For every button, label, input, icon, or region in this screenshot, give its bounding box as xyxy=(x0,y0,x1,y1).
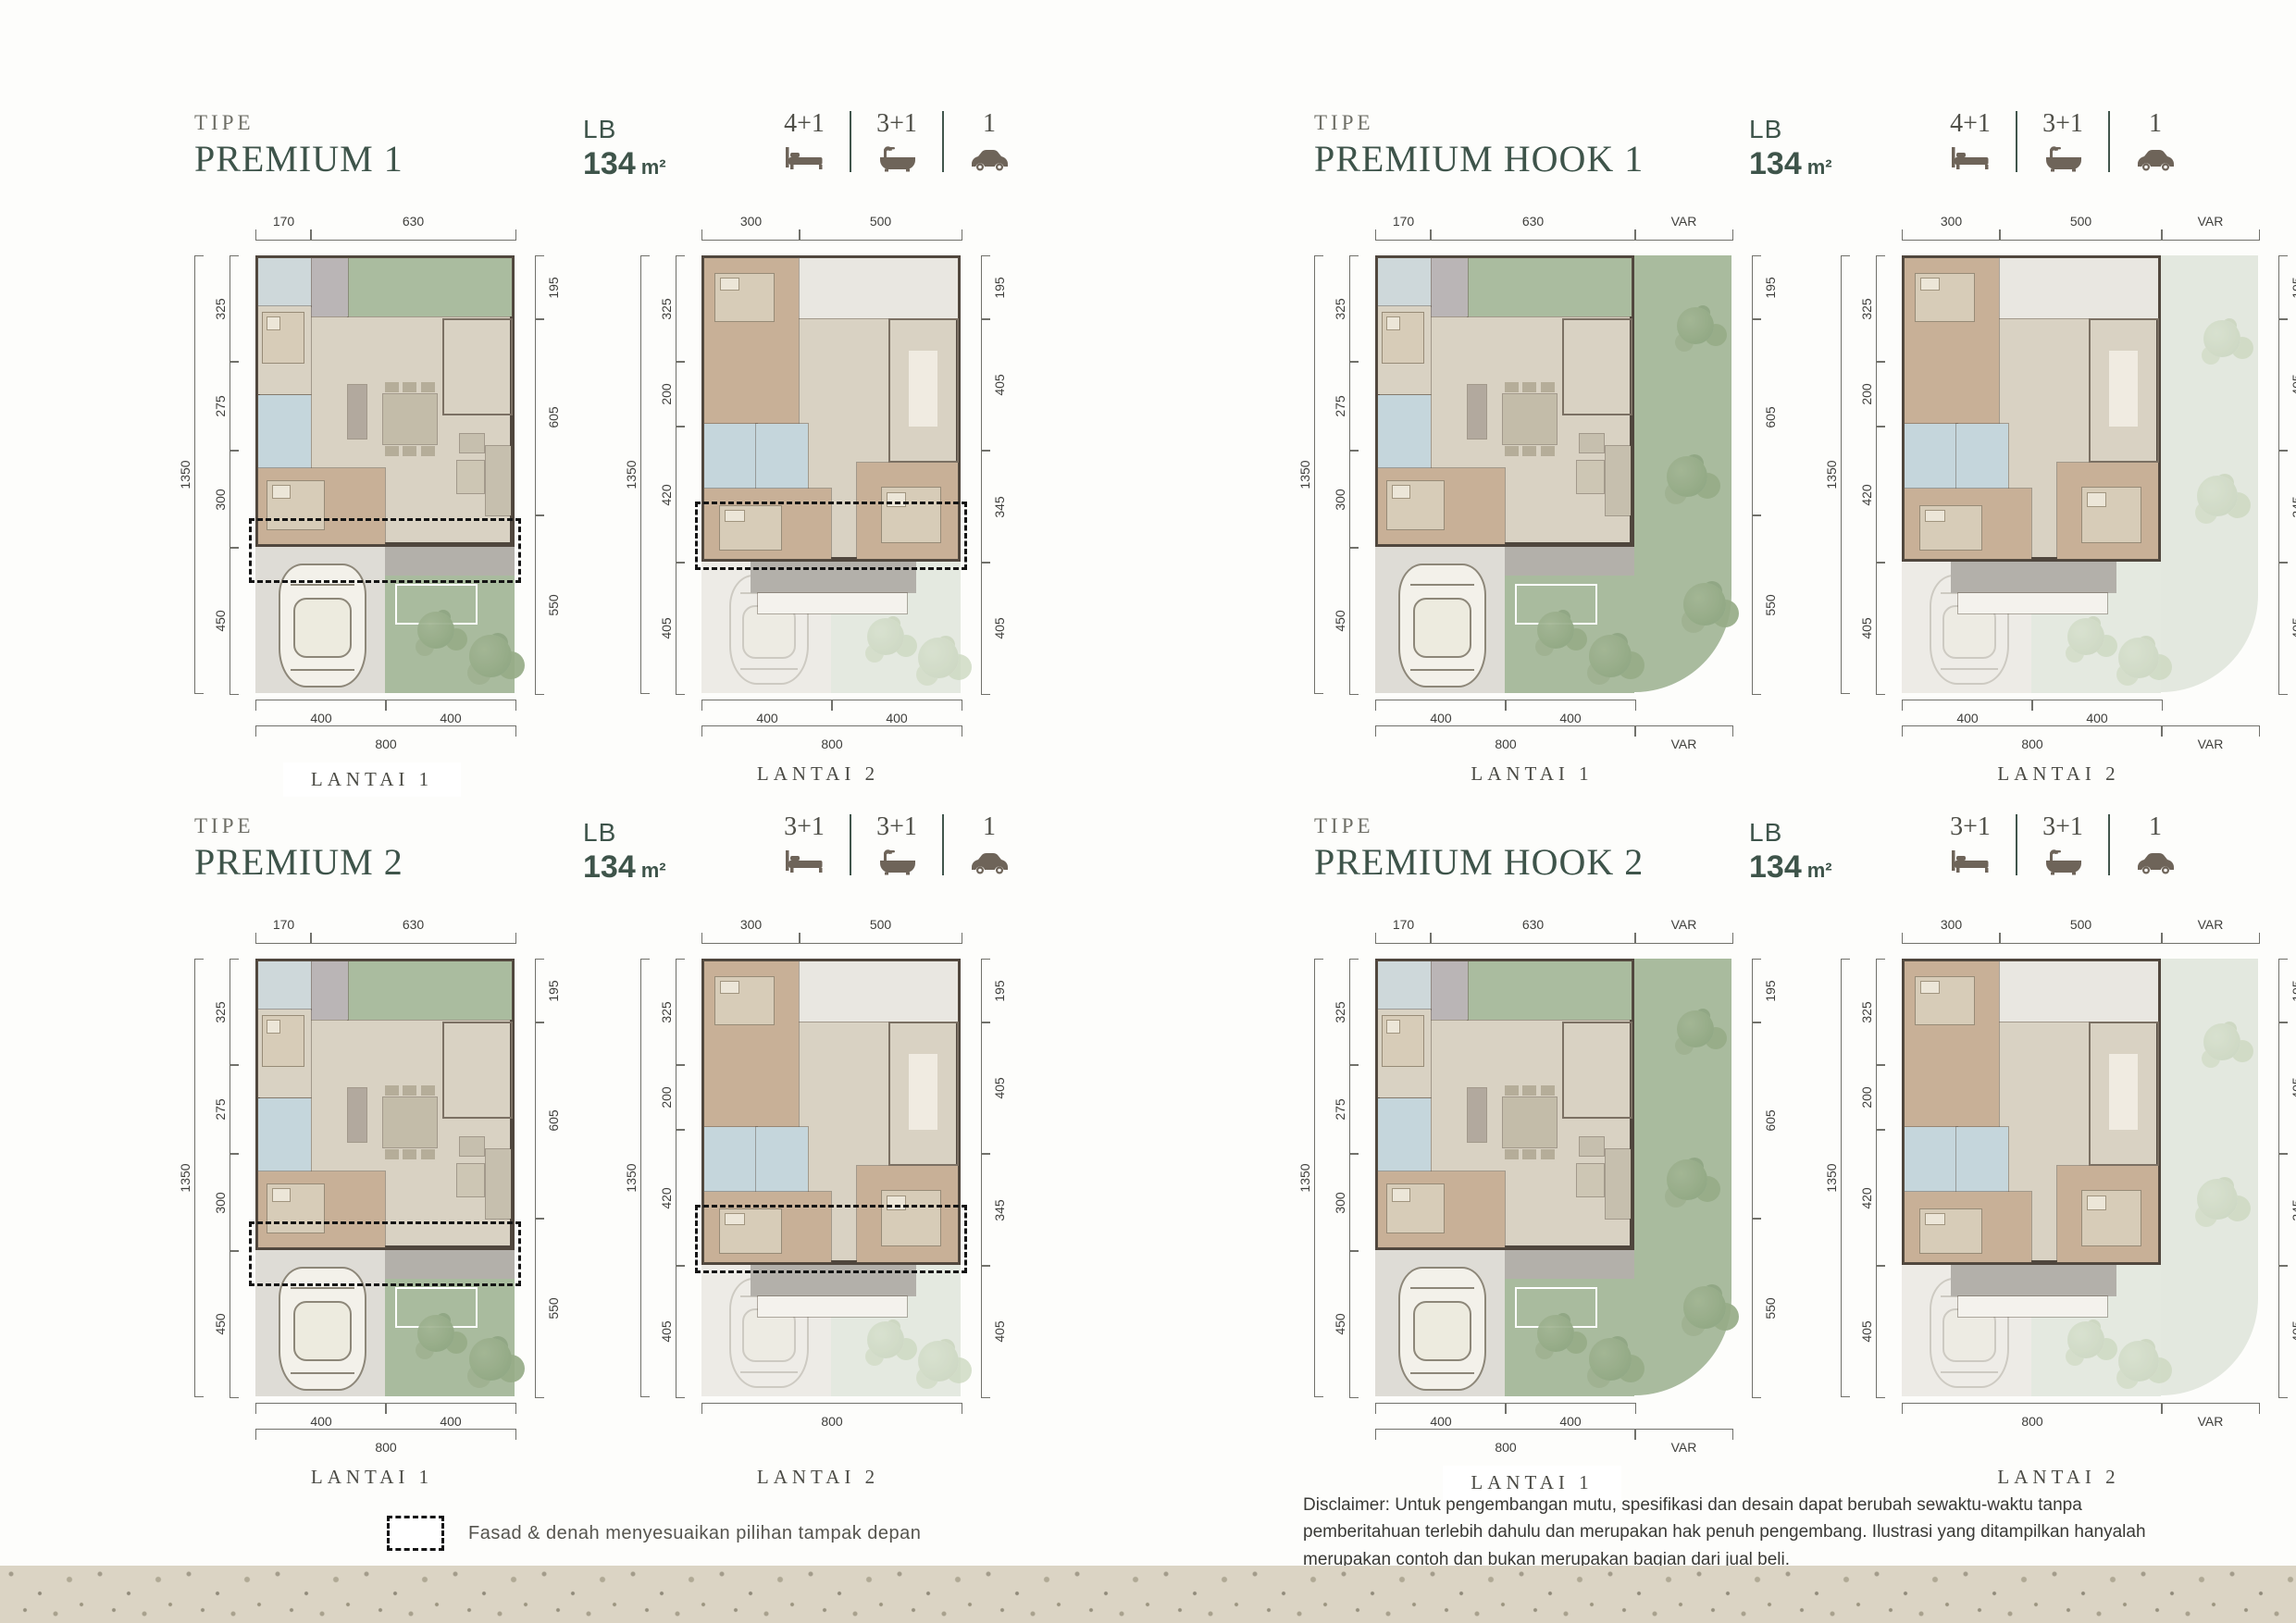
dim-label: 420 xyxy=(1859,1187,1874,1208)
dim-label: 405 xyxy=(992,1320,1007,1342)
dining-chair xyxy=(403,1085,416,1096)
dimension-line: 800 xyxy=(255,725,516,737)
pillow xyxy=(267,316,280,330)
dimension-line: 200 xyxy=(676,1064,685,1131)
floor-plan-lantai-2: LANTAI 2 3005001350325200420405195405345… xyxy=(622,918,1014,1497)
dimension-line: 300 xyxy=(701,933,800,944)
dimension-line: 405 xyxy=(676,562,685,695)
dim-label: 400 xyxy=(256,711,386,725)
plan-caption: LANTAI 2 xyxy=(622,762,1014,786)
terrazzo-footer-band xyxy=(0,1566,2296,1623)
dimension-line: 400 xyxy=(831,700,962,711)
dimension-line: 345 xyxy=(981,450,990,564)
floor-plan-canvas xyxy=(1296,918,1785,1395)
dimension-line: 500 xyxy=(1999,229,2163,241)
kitchen-counter xyxy=(348,1088,366,1142)
dimension-line: 170 xyxy=(255,229,312,241)
dimension-line: 405 xyxy=(676,1265,685,1398)
plan-caption: LANTAI 1 xyxy=(176,1466,568,1489)
car-icon xyxy=(968,144,1011,172)
dim-label: 405 xyxy=(2290,374,2296,395)
dimension-line: 400 xyxy=(255,700,387,711)
coffee-table xyxy=(457,1164,484,1196)
bed-icon xyxy=(1386,480,1445,530)
plans-row: LANTAI 1 1706301350325275300450195605550… xyxy=(176,215,1064,794)
dim-label: 450 xyxy=(213,1313,228,1334)
car-rearwindow xyxy=(740,1371,798,1373)
lb-value: 134 xyxy=(583,849,636,885)
dimension-line: 275 xyxy=(230,361,239,452)
dimension-line: 500 xyxy=(1999,933,2163,944)
dining-chair xyxy=(1522,446,1536,456)
pillow xyxy=(1920,981,1940,994)
dim-label: 500 xyxy=(800,214,962,229)
dim-label: 400 xyxy=(1376,711,1506,725)
dimension-line: 400 xyxy=(701,700,833,711)
unit-stats: 3+13+11 xyxy=(759,814,1035,875)
floor-plan-lantai-2: LANTAI 2 3005001350325200420405195405345… xyxy=(622,215,1014,794)
car-rearwindow xyxy=(740,668,798,670)
dim-label: 800 xyxy=(702,737,962,751)
dining-chair xyxy=(403,446,416,456)
dim-label: 195 xyxy=(1763,277,1778,298)
dimension-line: VAR xyxy=(2161,933,2260,944)
dim-label: 400 xyxy=(256,1414,386,1429)
dim-label: VAR xyxy=(1635,737,1732,751)
front-garden xyxy=(1468,258,1632,316)
awning xyxy=(1958,1296,2107,1317)
dim-label: VAR xyxy=(2162,1414,2259,1429)
stat-value: 4+1 xyxy=(784,111,825,137)
dimension-line: 400 xyxy=(1375,1403,1507,1414)
section-header: TIPE PREMIUM HOOK 1 LB 134m² 4+13+11 xyxy=(1296,111,2295,204)
plan-caption: LANTAI 1 xyxy=(176,762,568,797)
bed-icon xyxy=(1915,273,1975,322)
bathroom xyxy=(258,1098,311,1171)
coffee-table xyxy=(1577,461,1604,493)
lb-unit: m² xyxy=(1807,155,1832,179)
plan-caption: LANTAI 2 xyxy=(622,1466,1014,1489)
armchair xyxy=(460,434,484,452)
dimension-line: VAR xyxy=(2161,229,2260,241)
dimension-line: 450 xyxy=(230,1250,239,1398)
dimension-line: 400 xyxy=(385,1403,516,1414)
car-roof xyxy=(1413,1301,1472,1361)
dimension-line: 400 xyxy=(1375,700,1507,711)
dimension-line: 195 xyxy=(535,255,544,320)
stat-bed: 4+1 xyxy=(759,111,850,172)
car-windshield xyxy=(291,1287,354,1289)
bath-icon xyxy=(875,848,918,875)
dimension-line: 800 xyxy=(701,725,962,737)
dim-label: 420 xyxy=(1859,484,1874,505)
dimension-line: 400 xyxy=(2031,700,2163,711)
dining-chair xyxy=(1505,382,1519,392)
lb-block: LB 134m² xyxy=(583,111,759,182)
bathroom xyxy=(1378,1098,1431,1171)
dim-label: 400 xyxy=(702,711,832,725)
dim-label: 800 xyxy=(1376,737,1635,751)
dim-label: 550 xyxy=(1763,594,1778,615)
dining-chair xyxy=(385,1149,399,1159)
dimension-line: 605 xyxy=(1752,318,1761,516)
stat-car: 1 xyxy=(2108,111,2201,172)
dimension-line: 405 xyxy=(1876,1265,1885,1398)
dining-table xyxy=(1503,394,1557,444)
stat-value: 3+1 xyxy=(876,814,917,840)
tree-icon xyxy=(469,1338,512,1381)
stair-landing xyxy=(909,351,937,427)
bed-icon xyxy=(262,312,304,364)
foyer xyxy=(311,961,348,1020)
type-name: PREMIUM 1 xyxy=(194,137,583,180)
dimension-line: 450 xyxy=(230,547,239,695)
lb-unit: m² xyxy=(1807,859,1832,882)
dimension-line: 170 xyxy=(1375,229,1432,241)
dimension-line: 800 xyxy=(701,1403,962,1414)
stat-bath: 3+1 xyxy=(2016,814,2108,875)
canopy xyxy=(1951,562,2116,593)
tipe-label: TIPE xyxy=(1314,111,1749,135)
dim-label: 400 xyxy=(1506,711,1635,725)
dim-label: 325 xyxy=(1333,1001,1347,1022)
dimension-line: 200 xyxy=(1876,1064,1885,1131)
bed-icon xyxy=(783,848,825,875)
tree-icon xyxy=(2197,1179,2238,1220)
stat-bed: 4+1 xyxy=(1925,111,2016,172)
dining-chair xyxy=(385,446,399,456)
dim-label: 325 xyxy=(659,1001,674,1022)
dimension-line: 405 xyxy=(981,1022,990,1155)
side-garden xyxy=(2161,255,2258,692)
dimension-line: 405 xyxy=(981,318,990,452)
dim-label: 450 xyxy=(1333,1313,1347,1334)
dimension-line: 195 xyxy=(2278,959,2288,1023)
dim-label: 400 xyxy=(1903,711,2032,725)
dimension-line: 405 xyxy=(2278,1022,2288,1155)
dimension-line: VAR xyxy=(1634,229,1733,241)
dim-label: VAR xyxy=(2162,917,2259,932)
section-premium-hook-1: TIPE PREMIUM HOOK 1 LB 134m² 4+13+11 LAN… xyxy=(1296,111,2295,794)
front-garden xyxy=(1468,961,1632,1020)
stair-landing xyxy=(2109,351,2138,427)
dim-label: 550 xyxy=(1763,1297,1778,1319)
dim-label: 500 xyxy=(800,917,962,932)
dimension-line: 605 xyxy=(535,1022,544,1220)
dim-label: 405 xyxy=(2290,1077,2296,1098)
dimension-line: 345 xyxy=(981,1153,990,1267)
stairs xyxy=(1562,318,1632,415)
dimension-line: 405 xyxy=(981,562,990,695)
dim-label: 300 xyxy=(1903,917,2000,932)
pillow xyxy=(1386,1020,1400,1034)
tree-icon xyxy=(918,1341,959,1381)
dim-label: 420 xyxy=(659,484,674,505)
tree-icon xyxy=(2118,1341,2159,1381)
dimension-line: 300 xyxy=(1902,229,2001,241)
section-header: TIPE PREMIUM 2 LB 134m² 3+13+11 xyxy=(176,814,1064,907)
dimension-line: 500 xyxy=(799,229,962,241)
dim-label: 550 xyxy=(546,1297,561,1319)
tree-icon xyxy=(1537,1315,1574,1352)
dim-label: 400 xyxy=(1376,1414,1506,1429)
pillow xyxy=(1925,1213,1945,1225)
dimension-line: 200 xyxy=(1876,361,1885,427)
dim-label: 170 xyxy=(256,214,311,229)
dimension-line: 300 xyxy=(701,229,800,241)
dining-chair xyxy=(421,1149,435,1159)
dimension-line: 275 xyxy=(1349,1064,1359,1155)
dimension-line: VAR xyxy=(1634,1429,1733,1440)
stat-value: 1 xyxy=(983,814,996,840)
dim-label: VAR xyxy=(2162,737,2259,751)
dining-chair xyxy=(1505,1085,1519,1096)
bathroom xyxy=(258,961,311,1010)
dimension-line: 195 xyxy=(2278,255,2288,320)
front-garden xyxy=(348,258,512,316)
tree-icon xyxy=(1667,456,1707,497)
fasad-legend: Fasad & denah menyesuaikan pilihan tampa… xyxy=(387,1516,921,1551)
stat-car: 1 xyxy=(942,814,1035,875)
sofa xyxy=(486,1149,511,1219)
dimension-line: 420 xyxy=(676,426,685,564)
plans-row: LANTAI 1 170630VAR1350325275300450195605… xyxy=(1296,918,2295,1497)
lb-value: 134 xyxy=(583,146,636,181)
dimension-line: 195 xyxy=(535,959,544,1023)
floor-plan-lantai-1: LANTAI 1 170630VAR1350325275300450195605… xyxy=(1296,215,1769,794)
dim-label: 605 xyxy=(546,406,561,427)
car-roof xyxy=(293,1301,353,1361)
bathroom xyxy=(1378,961,1431,1010)
car-icon xyxy=(2134,848,2177,875)
dim-label: 405 xyxy=(992,617,1007,638)
stairs xyxy=(442,318,513,415)
brochure-page: TIPE PREMIUM 1 LB 134m² 4+13+11 LANTAI 1… xyxy=(0,0,2296,1623)
car-rearwindow xyxy=(1410,1372,1474,1374)
floor-plan-canvas xyxy=(1296,215,1785,692)
fasad-marker xyxy=(249,1221,521,1286)
dimension-line: 345 xyxy=(2278,1153,2288,1267)
dim-label: 195 xyxy=(1763,980,1778,1001)
dim-label: 405 xyxy=(659,1320,674,1342)
dim-label: 1350 xyxy=(178,460,192,489)
car-windshield xyxy=(291,584,354,586)
dining-chair xyxy=(1541,1149,1555,1159)
coffee-table xyxy=(1577,1164,1604,1196)
tree-icon xyxy=(2118,638,2159,678)
pillow xyxy=(2087,492,2106,507)
dimension-line: 400 xyxy=(1902,700,2033,711)
car-windshield xyxy=(1410,584,1474,586)
tree-icon xyxy=(867,1321,904,1358)
stat-value: 3+1 xyxy=(1950,814,1991,840)
awning xyxy=(1958,593,2107,613)
stat-value: 3+1 xyxy=(784,814,825,840)
dimension-line: 1350 xyxy=(640,959,650,1397)
stairs xyxy=(442,1022,513,1119)
type-name: PREMIUM HOOK 2 xyxy=(1314,840,1749,884)
dim-label: 275 xyxy=(213,1098,228,1120)
type-name: PREMIUM HOOK 1 xyxy=(1314,137,1749,180)
dim-label: 630 xyxy=(311,214,515,229)
dimension-line: 170 xyxy=(255,933,312,944)
dim-label: 405 xyxy=(1859,617,1874,638)
dimension-line: 630 xyxy=(310,933,516,944)
lb-unit: m² xyxy=(641,859,666,882)
dimension-line: 405 xyxy=(2278,562,2288,695)
front-garden xyxy=(348,961,512,1020)
bath-icon xyxy=(2042,848,2084,875)
dim-label: 605 xyxy=(1763,406,1778,427)
tree-icon xyxy=(1683,583,1726,626)
dim-label: 1350 xyxy=(1297,460,1312,489)
stat-car: 1 xyxy=(2108,814,2201,875)
foyer xyxy=(311,258,348,316)
legend-text: Fasad & denah menyesuaikan pilihan tampa… xyxy=(468,1523,921,1544)
bathroom xyxy=(1905,1127,1957,1192)
dim-label: 800 xyxy=(1903,1414,2162,1429)
car-windshield xyxy=(1410,1287,1474,1289)
fasad-marker xyxy=(249,518,521,583)
dim-label: 200 xyxy=(1859,383,1874,404)
dim-label: 800 xyxy=(702,1414,962,1429)
dim-label: 405 xyxy=(1859,1320,1874,1342)
stat-value: 1 xyxy=(2149,814,2162,840)
dim-label: 800 xyxy=(1376,1440,1635,1455)
bed-icon xyxy=(714,273,775,322)
tree-icon xyxy=(1667,1159,1707,1200)
dining-chair xyxy=(1541,382,1555,392)
pillow xyxy=(2087,1196,2106,1210)
car-topview-icon xyxy=(1398,564,1486,688)
dimension-line: 275 xyxy=(1349,361,1359,452)
dim-label: 400 xyxy=(386,711,515,725)
lb-value: 134 xyxy=(1749,849,1802,885)
dim-label: 400 xyxy=(386,1414,515,1429)
dim-label: 300 xyxy=(1333,1192,1347,1213)
dim-label: 345 xyxy=(2290,496,2296,517)
plans-row: LANTAI 1 1706301350325275300450195605550… xyxy=(176,918,1064,1497)
disclaimer-text: Disclaimer: Untuk pengembangan mutu, spe… xyxy=(1303,1492,2164,1573)
dim-label: 345 xyxy=(992,496,1007,517)
floor-plan-lantai-1: LANTAI 1 1706301350325275300450195605550… xyxy=(176,215,568,794)
dim-label: 300 xyxy=(702,214,800,229)
dining-chair xyxy=(1541,1085,1555,1096)
stat-bed: 3+1 xyxy=(759,814,850,875)
dimension-line: 325 xyxy=(230,255,239,363)
unit-stats: 4+13+11 xyxy=(759,111,1035,172)
dimension-line: 630 xyxy=(1430,229,1636,241)
car-rearwindow xyxy=(1410,669,1474,671)
dimension-line: 450 xyxy=(1349,547,1359,695)
dim-label: 200 xyxy=(1859,1086,1874,1108)
car-rearwindow xyxy=(1941,1371,1998,1373)
dim-label: 300 xyxy=(213,1192,228,1213)
dining-chair xyxy=(1522,1085,1536,1096)
dimension-line: 325 xyxy=(1876,255,1885,363)
sofa xyxy=(1606,446,1631,515)
section-premium-1: TIPE PREMIUM 1 LB 134m² 4+13+11 LANTAI 1… xyxy=(176,111,1064,794)
dining-chair xyxy=(385,1085,399,1096)
dim-label: 1350 xyxy=(1824,460,1839,489)
bathroom xyxy=(704,424,757,489)
dim-label: 275 xyxy=(213,395,228,416)
dimension-line: 1350 xyxy=(1841,959,1850,1397)
dim-label: 300 xyxy=(702,917,800,932)
stat-value: 3+1 xyxy=(2042,111,2083,137)
tree-icon xyxy=(1677,1010,1714,1047)
dimension-line: 550 xyxy=(535,1218,544,1398)
dimension-line: 1350 xyxy=(194,255,204,694)
dimension-line: 800 xyxy=(255,1429,516,1440)
car-icon xyxy=(968,848,1011,875)
dim-label: 195 xyxy=(992,277,1007,298)
dimension-line: 300 xyxy=(1349,450,1359,549)
car-rearwindow xyxy=(1941,668,1998,670)
dimension-line: VAR xyxy=(2161,1403,2260,1414)
tree-icon xyxy=(417,612,454,649)
bathroom xyxy=(258,395,311,468)
dim-label: 325 xyxy=(659,298,674,319)
dim-label: 345 xyxy=(992,1199,1007,1220)
dimension-line: 325 xyxy=(230,959,239,1066)
bathroom xyxy=(1378,258,1431,306)
tree-icon xyxy=(1589,1338,1632,1381)
pillow xyxy=(272,485,291,498)
dimension-line: 405 xyxy=(981,1265,990,1398)
lb-label: LB xyxy=(583,115,759,144)
bed-icon xyxy=(783,144,825,172)
dimension-line: 400 xyxy=(1505,700,1636,711)
bath-icon xyxy=(2042,144,2084,172)
dimension-line: 195 xyxy=(981,959,990,1023)
dining-chair xyxy=(421,382,435,392)
stat-value: 1 xyxy=(2149,111,2162,137)
dimension-line: 400 xyxy=(1505,1403,1636,1414)
dimension-line: 405 xyxy=(1876,562,1885,695)
dimension-line: 405 xyxy=(2278,318,2288,452)
stat-bed: 3+1 xyxy=(1925,814,2016,875)
dimension-line: 300 xyxy=(1902,933,2001,944)
car-rearwindow xyxy=(291,1372,354,1374)
tree-icon xyxy=(2067,1321,2104,1358)
dimension-line: 195 xyxy=(1752,255,1761,320)
dimension-line: 605 xyxy=(535,318,544,516)
tree-icon xyxy=(1677,307,1714,344)
bed-icon xyxy=(2081,487,2141,543)
tree-icon xyxy=(2067,618,2104,655)
dim-label: VAR xyxy=(1635,1440,1732,1455)
dim-label: 1350 xyxy=(1297,1163,1312,1192)
bed-icon xyxy=(1386,1183,1445,1233)
dimension-line: 630 xyxy=(310,229,516,241)
floor-plan-canvas xyxy=(1822,215,2296,692)
dim-label: 800 xyxy=(256,737,515,751)
plan-caption: LANTAI 2 xyxy=(1822,1466,2295,1489)
tipe-label: TIPE xyxy=(194,111,583,135)
dim-label: 325 xyxy=(1859,1001,1874,1022)
dim-label: 195 xyxy=(546,277,561,298)
dim-label: 405 xyxy=(2290,617,2296,638)
dimension-line: 550 xyxy=(1752,1218,1761,1398)
dim-label: 300 xyxy=(1333,489,1347,510)
dimension-line: 550 xyxy=(1752,514,1761,695)
car-icon xyxy=(2134,144,2177,172)
dimension-line: 450 xyxy=(1349,1250,1359,1398)
dim-label: 195 xyxy=(2290,277,2296,298)
dim-label: 630 xyxy=(1431,214,1635,229)
section-header: TIPE PREMIUM HOOK 2 LB 134m² 3+13+11 xyxy=(1296,814,2295,907)
